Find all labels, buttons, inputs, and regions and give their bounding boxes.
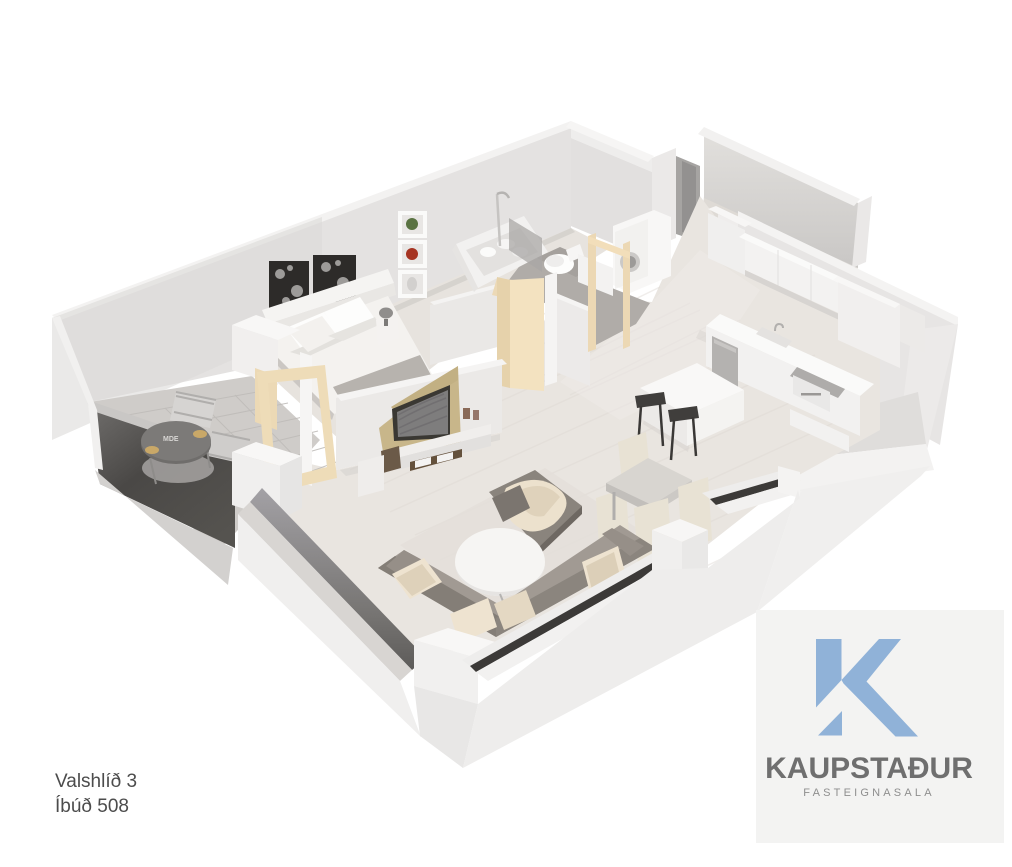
svg-text:KAUPSTAÐUR: KAUPSTAÐUR (765, 752, 973, 785)
svg-text:FASTEIGNASALA: FASTEIGNASALA (803, 787, 934, 799)
